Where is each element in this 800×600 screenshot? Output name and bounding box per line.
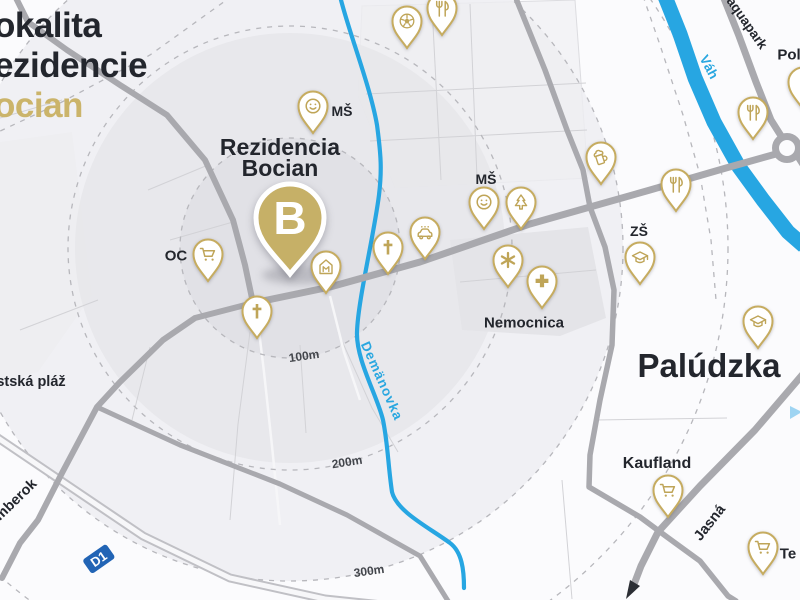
poi-pin-restaurant-vah	[735, 95, 771, 146]
poi-pin-restaurant-road	[658, 167, 694, 218]
poi-pin-shopping-oc	[190, 237, 226, 288]
poi-pin-school-zs	[622, 240, 658, 291]
place-label-oc: OC	[165, 248, 188, 265]
roundabout	[776, 137, 799, 160]
poi-pin-park	[503, 185, 539, 236]
page-title: okalita ezidencie ocian	[0, 6, 147, 126]
place-label-zs: ZŠ	[630, 223, 648, 239]
location-map: okalita ezidencie ocian Rezidencia Bocia…	[0, 0, 800, 600]
poi-pin-church-south	[239, 294, 275, 345]
poi-pin-hospital	[524, 264, 560, 315]
main-marker-pin-bocian: B	[240, 178, 340, 293]
place-label-nemocnica: Nemocnica	[484, 315, 564, 332]
poi-pin-soccer-field	[389, 4, 425, 55]
poi-pin-pol-partial	[785, 65, 800, 116]
poi-pin-pharmacy	[490, 243, 526, 294]
poi-pin-car-wash	[407, 215, 443, 266]
title-line-1: okalita	[0, 6, 147, 46]
place-label-pol-partial: Pol	[777, 47, 800, 64]
residence-name-label: Rezidencia Bocian	[220, 137, 340, 179]
place-label-ms-north: MŠ	[332, 103, 353, 119]
poi-pin-shopping-tesco	[745, 530, 781, 581]
poi-pin-pub	[583, 140, 619, 191]
district-label-paludzka: Palúdzka	[637, 347, 780, 385]
poi-pin-church-east	[370, 230, 406, 281]
poi-pin-kindergarten-north	[295, 89, 331, 140]
place-label-kaufland: Kaufland	[623, 455, 691, 473]
poi-pin-restaurant-north	[424, 0, 460, 42]
title-line-2: ezidencie	[0, 46, 147, 86]
place-label-ms-east: MŠ	[476, 171, 497, 187]
main-marker-letter: B	[273, 192, 306, 244]
poi-pin-kindergarten-east	[466, 185, 502, 236]
place-label-mestska-plaz: stská pláž	[0, 374, 66, 390]
poi-pin-shopping-kaufland	[650, 473, 686, 524]
place-label-tesco-partial: Te	[780, 546, 796, 563]
title-line-3: ocian	[0, 86, 147, 126]
